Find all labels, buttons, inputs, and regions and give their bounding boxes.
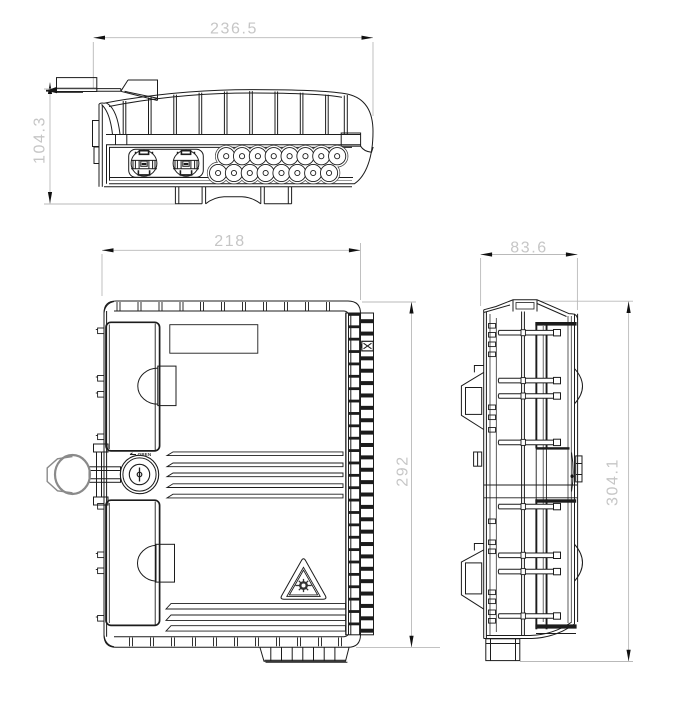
svg-text:83.6: 83.6 bbox=[510, 240, 548, 257]
svg-text:OPEN: OPEN bbox=[138, 452, 152, 457]
svg-text:104.3: 104.3 bbox=[32, 116, 49, 164]
svg-text:304.1: 304.1 bbox=[605, 458, 622, 506]
svg-text:218: 218 bbox=[214, 233, 246, 250]
svg-text:292: 292 bbox=[395, 455, 412, 487]
svg-text:236.5: 236.5 bbox=[210, 21, 258, 38]
